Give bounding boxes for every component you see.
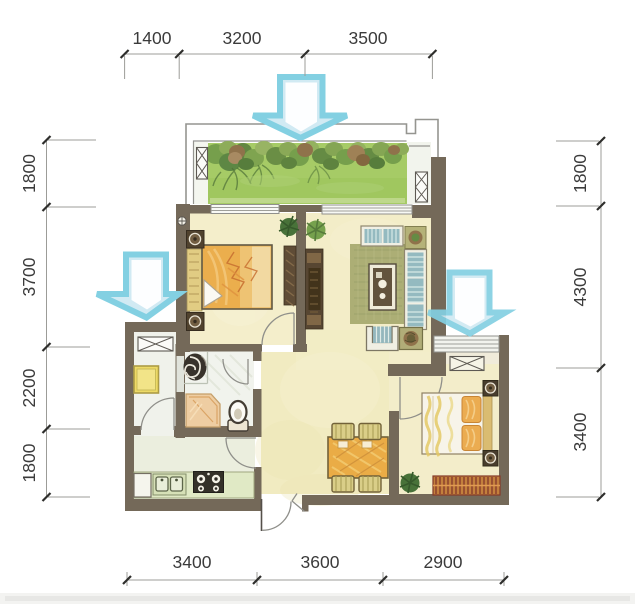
svg-text:2900: 2900 [424, 552, 463, 572]
svg-text:3500: 3500 [349, 28, 388, 48]
svg-text:3400: 3400 [570, 412, 590, 451]
svg-text:1800: 1800 [19, 154, 39, 193]
svg-text:1800: 1800 [19, 443, 39, 482]
svg-text:3600: 3600 [301, 552, 340, 572]
svg-text:4300: 4300 [570, 267, 590, 306]
svg-text:3400: 3400 [173, 552, 212, 572]
svg-text:3700: 3700 [19, 257, 39, 296]
svg-text:1800: 1800 [570, 154, 590, 193]
svg-text:1400: 1400 [133, 28, 172, 48]
svg-text:3200: 3200 [223, 28, 262, 48]
svg-text:2200: 2200 [19, 368, 39, 407]
